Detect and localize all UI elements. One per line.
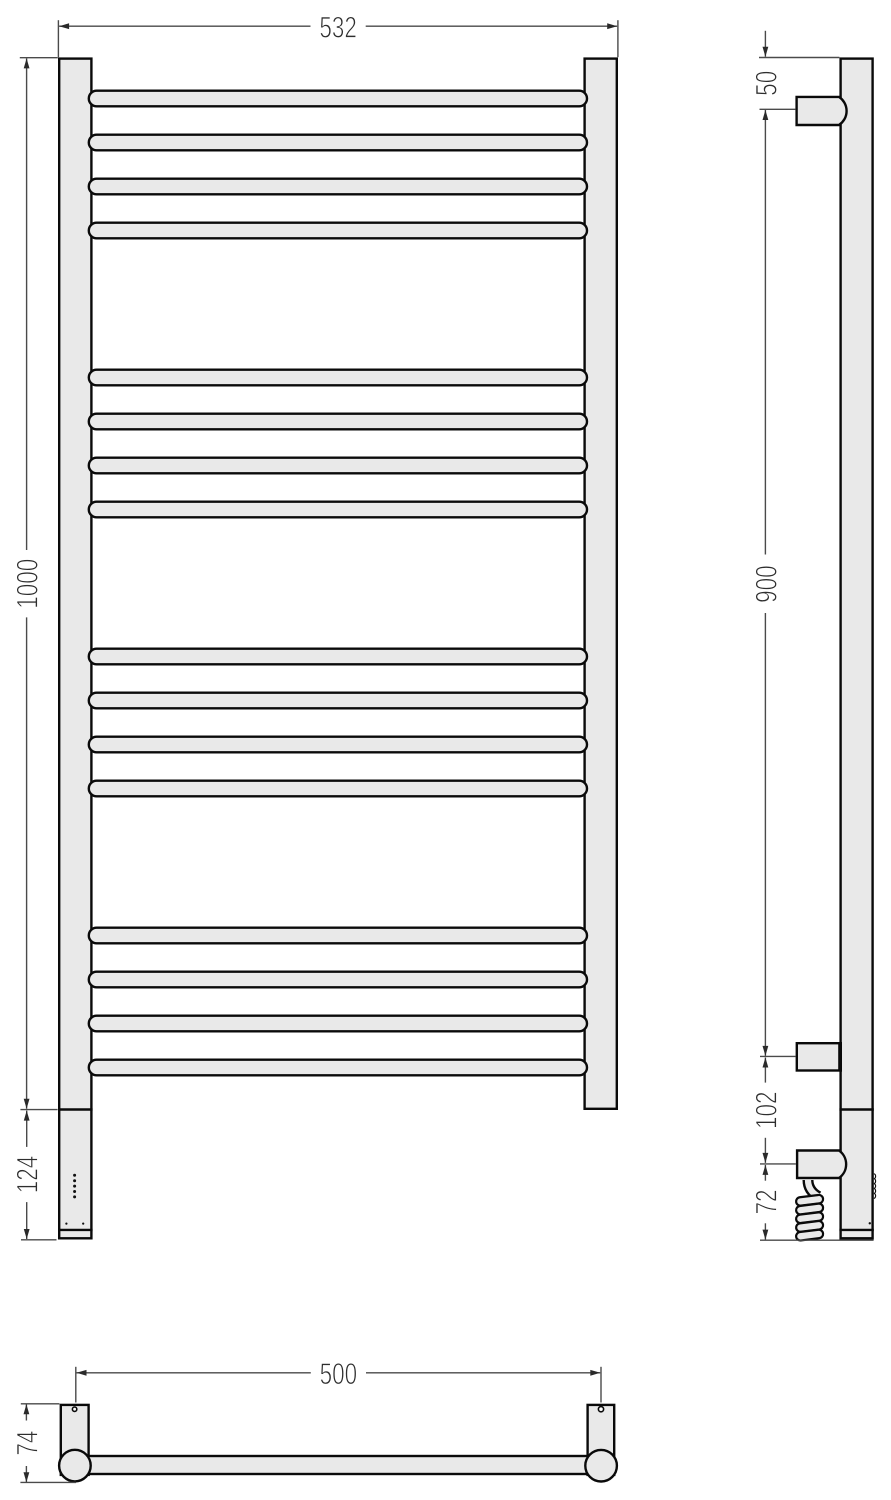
svg-text:124: 124 [12,1156,45,1194]
svg-text:74: 74 [11,1431,44,1456]
svg-text:900: 900 [750,565,783,603]
svg-text:50: 50 [750,71,783,96]
svg-text:532: 532 [319,11,357,44]
svg-text:1000: 1000 [12,559,45,609]
svg-text:72: 72 [750,1189,783,1214]
svg-text:500: 500 [320,1358,358,1391]
svg-text:102: 102 [750,1091,783,1129]
